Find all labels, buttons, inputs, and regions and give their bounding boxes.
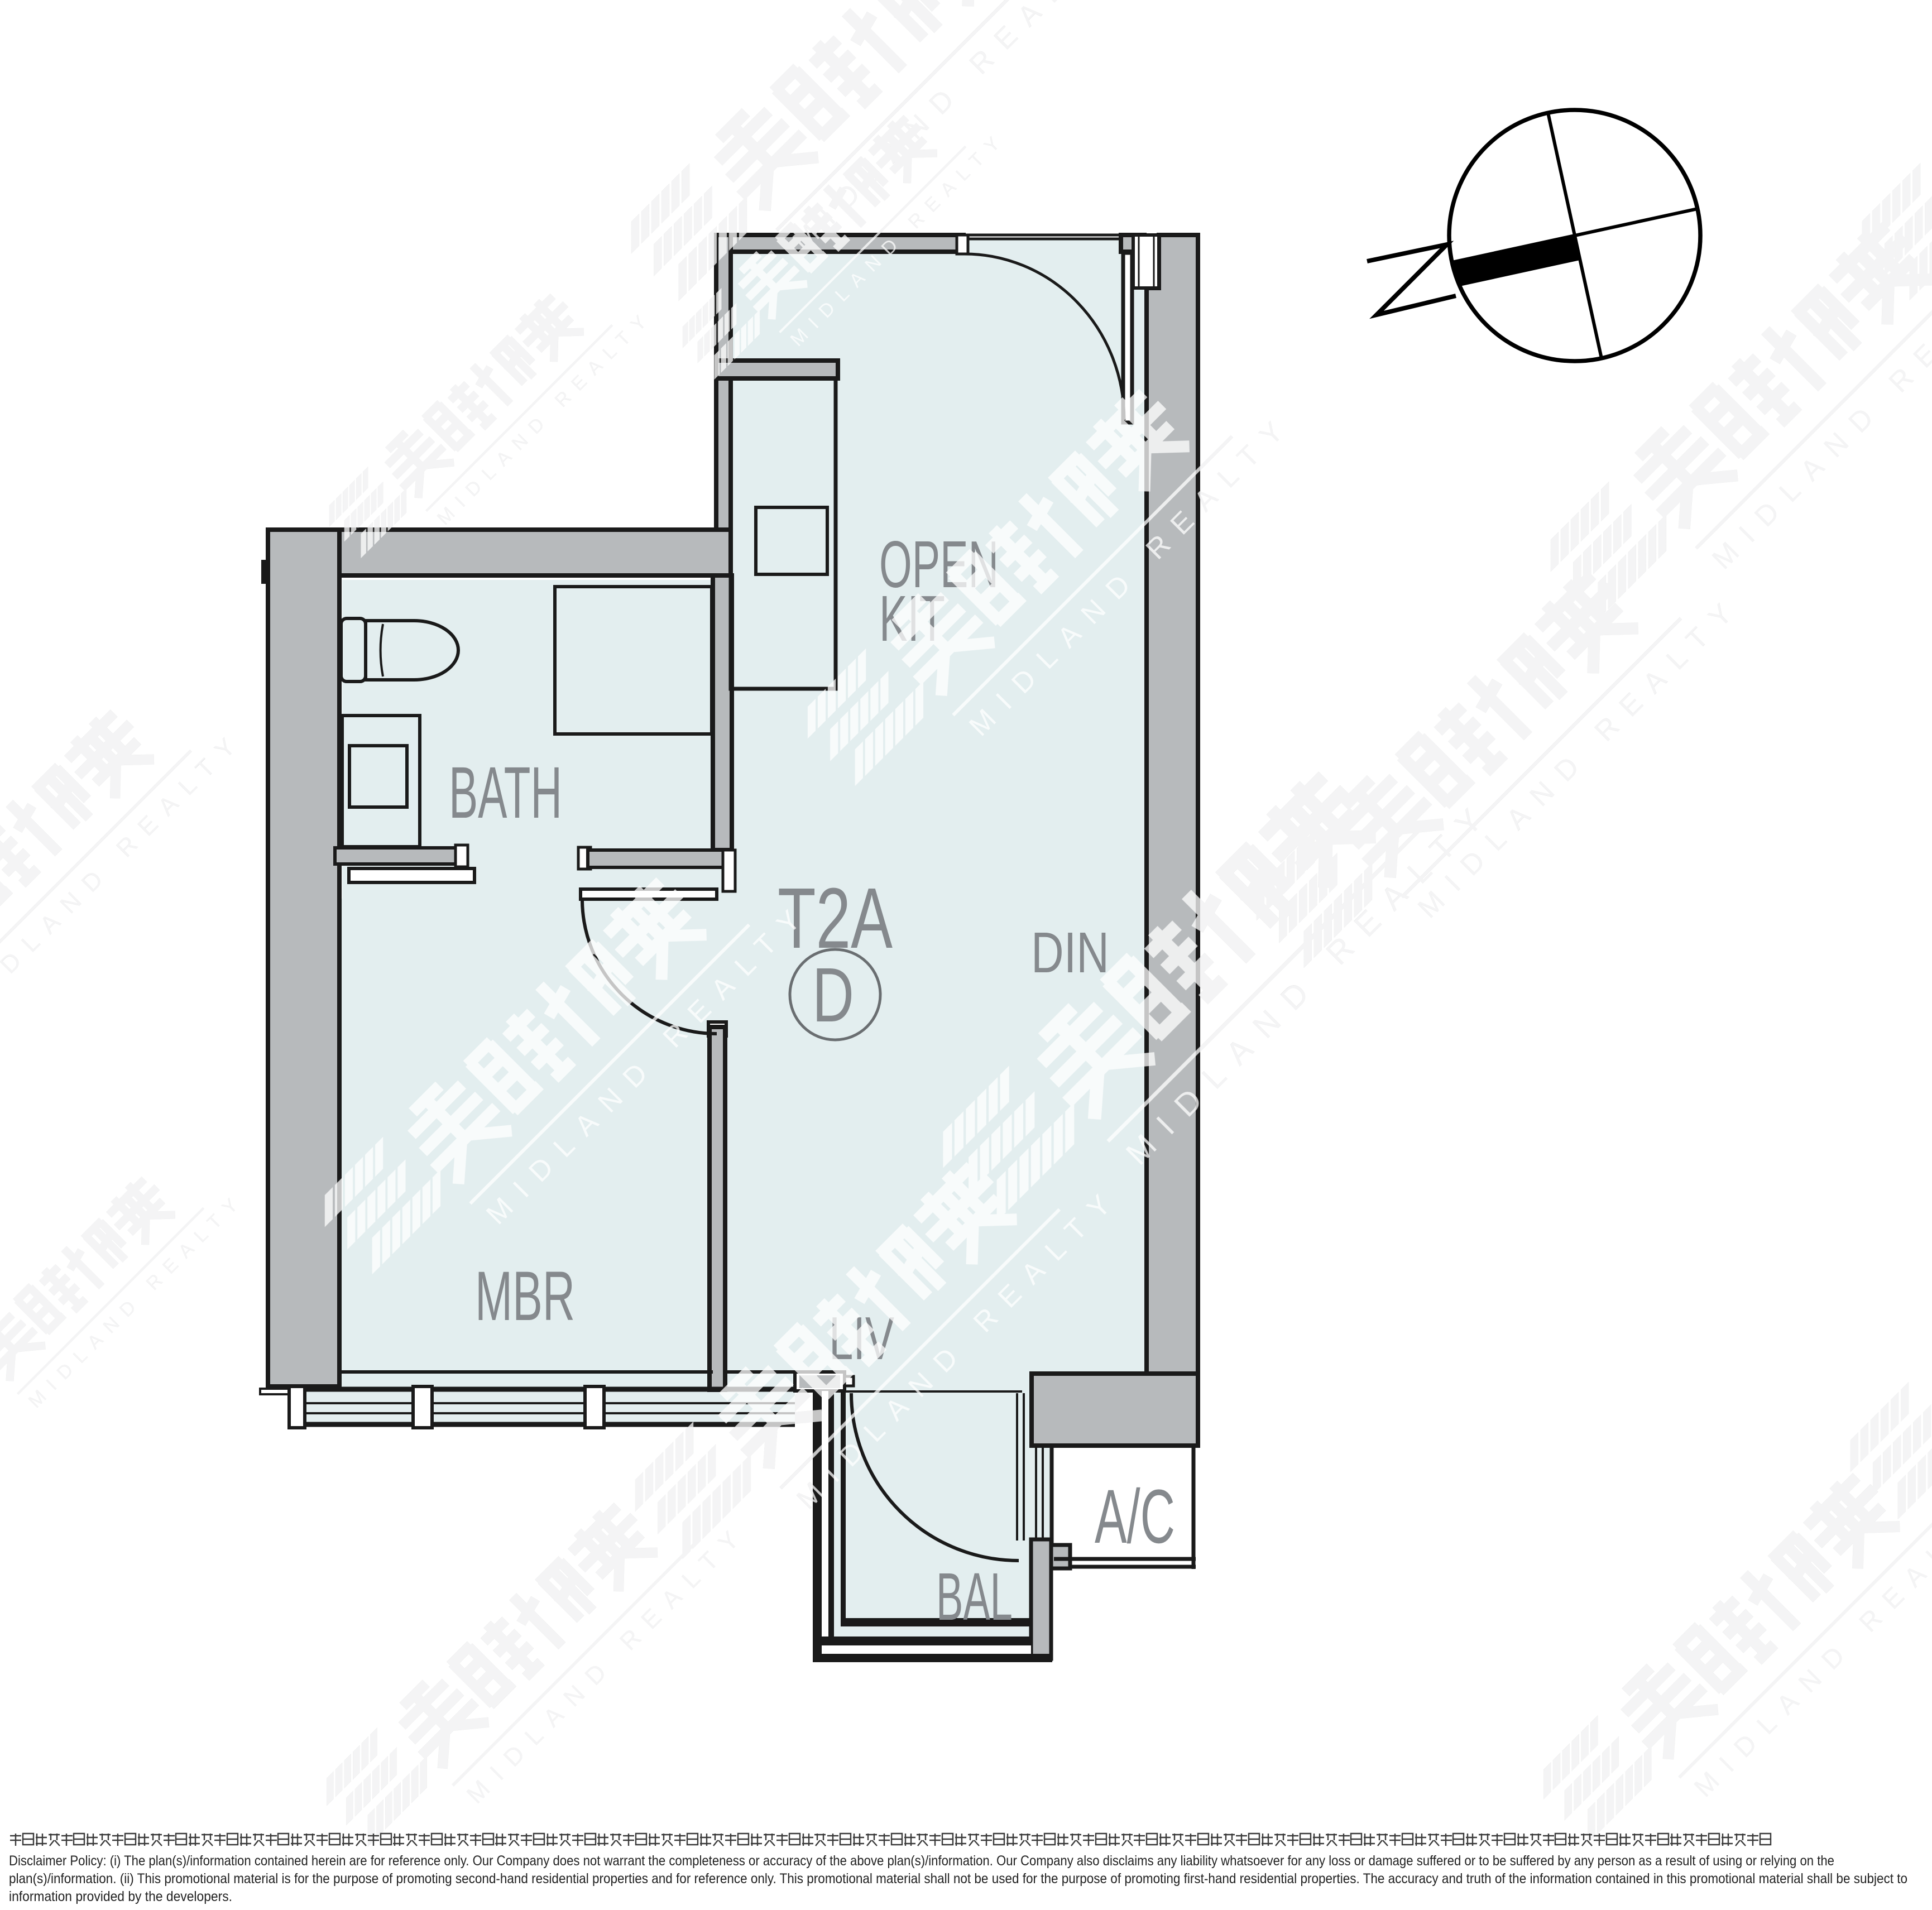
svg-text:MBR: MBR	[475, 1258, 575, 1335]
svg-text:plan(s)/information. (ii) This: plan(s)/information. (ii) This promotion…	[9, 1871, 1907, 1887]
svg-text:D: D	[812, 952, 854, 1038]
svg-text:A/C: A/C	[1095, 1474, 1175, 1559]
svg-text:BAL: BAL	[936, 1558, 1013, 1634]
svg-text:DIN: DIN	[1031, 920, 1109, 985]
svg-text:BATH: BATH	[449, 751, 562, 833]
svg-text:Disclaimer Policy: (i) The pla: Disclaimer Policy: (i) The plan(s)/infor…	[9, 1853, 1834, 1869]
svg-text:information provided by the de: information provided by the developers.	[9, 1889, 232, 1904]
